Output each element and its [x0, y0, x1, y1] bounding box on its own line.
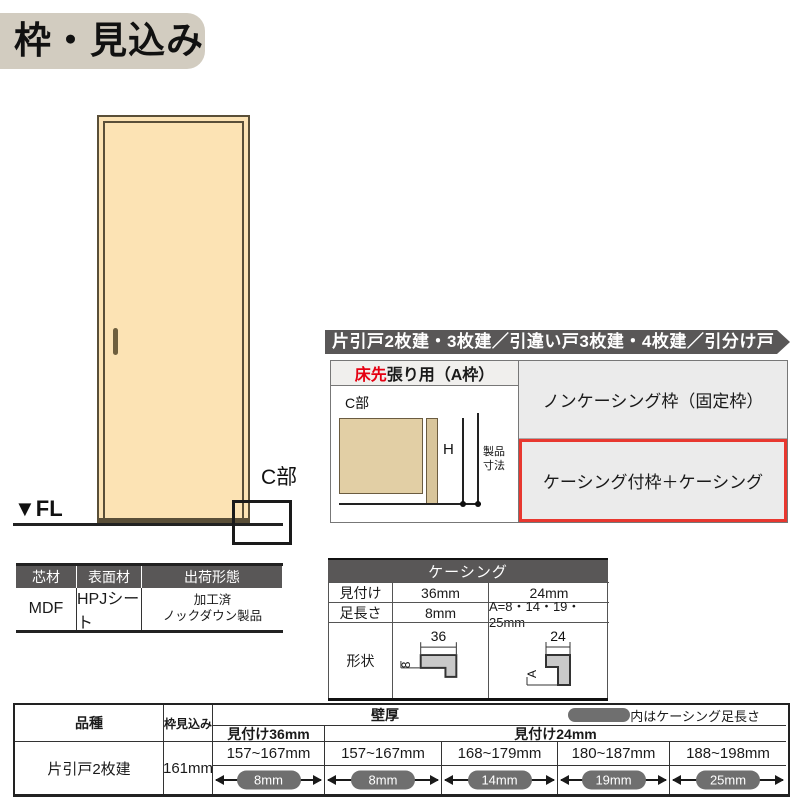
- ashinagasa-label: 足長さ: [329, 602, 393, 622]
- casing-table-title: ケーシング: [328, 560, 608, 582]
- floor-level-label: ▼FL: [14, 496, 63, 522]
- c-part-detail-diagram: C部 H 製品 寸法: [331, 386, 518, 522]
- casing-leg-pill: 25mm: [696, 771, 760, 790]
- shipping-form-header: 出荷形態: [142, 566, 283, 588]
- door-handle-icon: [113, 328, 118, 355]
- shipping-form-value: 加工済 ノックダウン製品: [142, 588, 283, 630]
- sub-header-24: 見付け24mm: [324, 725, 786, 741]
- mikomi-value: 161mm: [163, 741, 212, 794]
- casing-leg-cell: 8mm: [212, 765, 324, 794]
- arrow-left-icon: [444, 775, 453, 785]
- casing-leg-pill: 19mm: [582, 771, 646, 790]
- ashinagasa-24-value: A=8・14・19・25mm: [489, 602, 609, 622]
- frame-table-left-column: 床先張り用（A枠） C部 H 製品 寸法: [331, 361, 519, 522]
- arrow-left-icon: [327, 775, 336, 785]
- core-material-header: 芯材: [16, 566, 77, 588]
- floor-first-header: 床先張り用（A枠）: [331, 361, 518, 386]
- mikomi-header: 枠見込み: [163, 705, 212, 741]
- casing-frame-cell-highlighted: ケーシング付枠＋ケーシング: [519, 439, 787, 522]
- door-panel-section: [339, 418, 423, 494]
- casing-shape-36-cell: 36 8: [393, 622, 489, 698]
- arrow-right-icon: [775, 775, 784, 785]
- casing-leg-cell: 25mm: [669, 765, 786, 794]
- casing-leg-pill: 8mm: [237, 771, 301, 790]
- door-inner-frame: [103, 121, 244, 520]
- product-dimension-label: 製品 寸法: [483, 446, 505, 474]
- frame-section: [426, 418, 438, 504]
- arrow-right-icon: [313, 775, 322, 785]
- frame-option-table: 床先張り用（A枠） C部 H 製品 寸法 ノンケーシング枠（固定枠） ケーシング: [330, 360, 788, 523]
- wall-range-cell: 180~187mm: [557, 741, 669, 765]
- svg-text:36: 36: [431, 628, 447, 644]
- floor-first-rest-text: 張り用（A枠）: [387, 361, 495, 385]
- svg-text:A: A: [525, 669, 539, 677]
- casing-profile-24-diagram: 24 A: [501, 627, 597, 695]
- wall-range-cell: 168~179mm: [441, 741, 557, 765]
- arrow-left-icon: [215, 775, 224, 785]
- dimension-dot: [460, 501, 466, 507]
- casing-table-grid: 見付け 36mm 24mm 足長さ 8mm A=8・14・19・25mm 形状 …: [328, 582, 608, 698]
- casing-table: ケーシング 見付け 36mm 24mm 足長さ 8mm A=8・14・19・25…: [328, 558, 608, 701]
- arrow-right-icon: [430, 775, 439, 785]
- arrow-right-icon: [546, 775, 555, 785]
- door-type-banner: 片引戸2枚建・3枚建／引違い戸3枚建・4枚建／引分け戸: [325, 330, 790, 354]
- ashinagasa-36-value: 8mm: [393, 602, 489, 622]
- wall-thickness-spec-table: 品種 枠見込み 壁厚 内はケーシング足長さ 見付け36mm 見付け24mm 片引…: [13, 703, 790, 797]
- casing-shape-24-cell: 24 A: [489, 622, 609, 698]
- dimension-dot: [475, 501, 481, 507]
- diagram-c-part-label: C部: [345, 393, 369, 413]
- catalog-page: 枠・見込み ▼FL C部 片引戸2枚建・3枚建／引違い戸3枚建・4枚建／引分け戸…: [0, 0, 800, 800]
- casing-profile-36-diagram: 36 8: [393, 627, 488, 695]
- casing-leg-pill: 8mm: [351, 771, 415, 790]
- hinshu-header: 品種: [15, 705, 163, 741]
- material-table-grid: 芯材 表面材 出荷形態 MDF HPJシート 加工済 ノックダウン製品: [16, 566, 283, 630]
- core-material-value: MDF: [16, 588, 77, 630]
- casing-leg-pill: 14mm: [468, 771, 532, 790]
- arrow-right-icon: [658, 775, 667, 785]
- wall-range-cell: 157~167mm: [212, 741, 324, 765]
- surface-material-value: HPJシート: [77, 588, 142, 630]
- hinshu-value: 片引戸2枚建: [15, 741, 163, 794]
- floor-first-red-text: 床先: [355, 361, 387, 385]
- frame-table-right-column: ノンケーシング枠（固定枠） ケーシング付枠＋ケーシング: [519, 361, 787, 522]
- svg-text:24: 24: [550, 628, 566, 644]
- mitsuke-36-value: 36mm: [393, 582, 489, 602]
- page-title: 枠・見込み: [0, 13, 205, 69]
- c-part-outline: [232, 500, 292, 545]
- non-casing-frame-cell: ノンケーシング枠（固定枠）: [519, 361, 787, 439]
- mitsuke-label: 見付け: [329, 582, 393, 602]
- height-dimension-line: [462, 418, 464, 504]
- sub-header-36: 見付け36mm: [212, 725, 324, 741]
- c-part-label: C部: [261, 461, 297, 491]
- door-illustration: [97, 115, 250, 525]
- material-table: 芯材 表面材 出荷形態 MDF HPJシート 加工済 ノックダウン製品: [16, 563, 283, 633]
- casing-leg-note: 内はケーシング足長さ: [568, 706, 760, 725]
- wall-range-cell: 188~198mm: [669, 741, 786, 765]
- wall-range-cell: 157~167mm: [324, 741, 441, 765]
- keijo-label: 形状: [329, 622, 393, 698]
- casing-leg-cell: 14mm: [441, 765, 557, 794]
- note-pill-icon: [568, 708, 630, 722]
- casing-leg-cell: 8mm: [324, 765, 441, 794]
- kabeatsu-header: 壁厚 内はケーシング足長さ: [212, 705, 786, 725]
- arrow-left-icon: [672, 775, 681, 785]
- product-dimension-line: [477, 413, 479, 504]
- arrow-left-icon: [560, 775, 569, 785]
- kabeatsu-label: 壁厚: [371, 705, 399, 725]
- casing-leg-cell: 19mm: [557, 765, 669, 794]
- height-label: H: [443, 441, 454, 458]
